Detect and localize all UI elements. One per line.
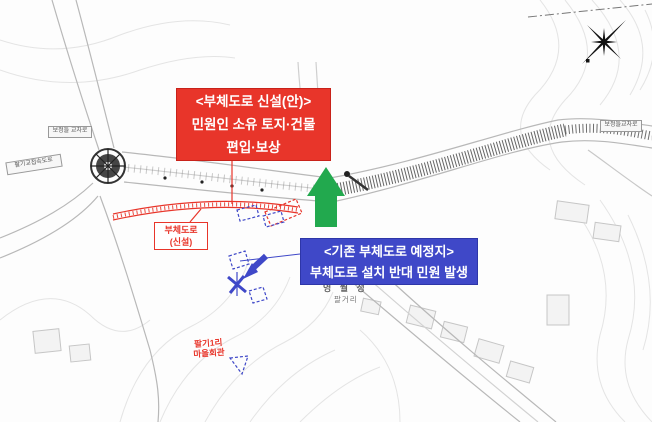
proposed-side-road-callout: <부체도로 신설(안)> 민원인 소유 토지·건물 편입·보상: [176, 88, 331, 161]
road-label-line: 부체도로: [155, 224, 207, 236]
callout-line: 편입·보상: [177, 136, 330, 159]
up-arrow-marker: [307, 167, 345, 227]
survey-mark-icon: [228, 272, 246, 296]
callout-line: 부체도로 설치 반대 민원 발생: [301, 262, 477, 283]
side-road-map-label: 부체도로 (신설): [154, 222, 208, 250]
callout-line: 민원인 소유 토지·건물: [177, 113, 330, 136]
pavilion-sub-label: 팔거리: [334, 294, 358, 305]
callout-line: <부체도로 신설(안)>: [177, 90, 330, 113]
intersection-label-left: 보정들 교차로: [48, 126, 92, 138]
annotation-overlay: [0, 0, 652, 422]
existing-side-road-callout: <기존 부체도로 예정지> 부체도로 설치 반대 민원 발생: [300, 238, 478, 285]
blue-leader-and-arrow: [240, 254, 300, 279]
callout-line: <기존 부체도로 예정지>: [301, 241, 477, 262]
village-hall-label: 팔기1리 마을회관: [192, 337, 225, 359]
site-plan-map: <부체도로 신설(안)> 민원인 소유 토지·건물 편입·보상 <기존 부체도로…: [0, 0, 652, 422]
intersection-label-right: 보정들교차로: [600, 120, 642, 132]
road-label-line: (신설): [155, 236, 207, 248]
red-leader-line: [190, 159, 232, 222]
